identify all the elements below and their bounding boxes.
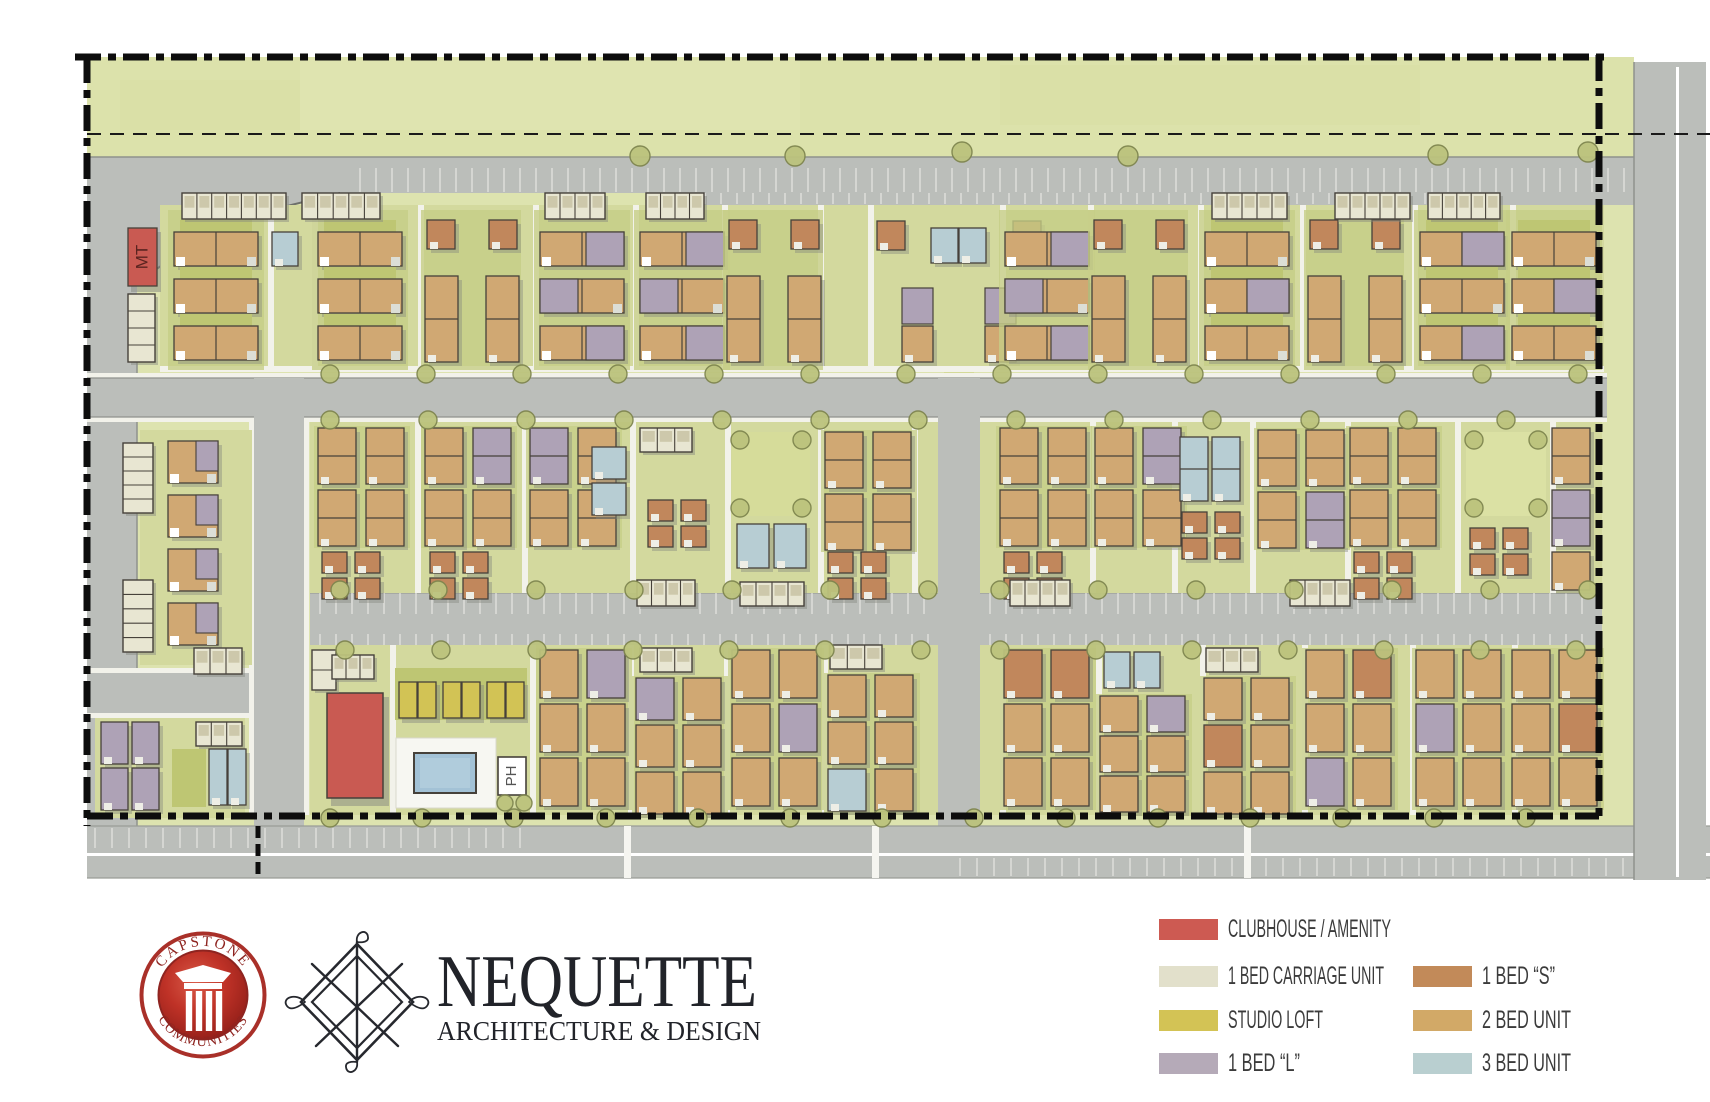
- svg-text:1 BED “S”: 1 BED “S”: [1482, 962, 1555, 990]
- svg-text:PH: PH: [503, 766, 520, 787]
- svg-text:1 BED “L”: 1 BED “L”: [1228, 1049, 1300, 1077]
- svg-text:STUDIO LOFT: STUDIO LOFT: [1228, 1006, 1323, 1034]
- svg-text:3 BED UNIT: 3 BED UNIT: [1482, 1049, 1571, 1077]
- svg-text:CLUBHOUSE / AMENITY: CLUBHOUSE / AMENITY: [1228, 915, 1391, 943]
- svg-text:2 BED UNIT: 2 BED UNIT: [1482, 1006, 1571, 1034]
- svg-text:ARCHITECTURE & DESIGN: ARCHITECTURE & DESIGN: [437, 1016, 761, 1046]
- svg-text:1 BED CARRIAGE UNIT: 1 BED CARRIAGE UNIT: [1228, 962, 1384, 990]
- svg-text:MT: MT: [132, 245, 151, 270]
- svg-text:NEQUETTE: NEQUETTE: [437, 941, 757, 1023]
